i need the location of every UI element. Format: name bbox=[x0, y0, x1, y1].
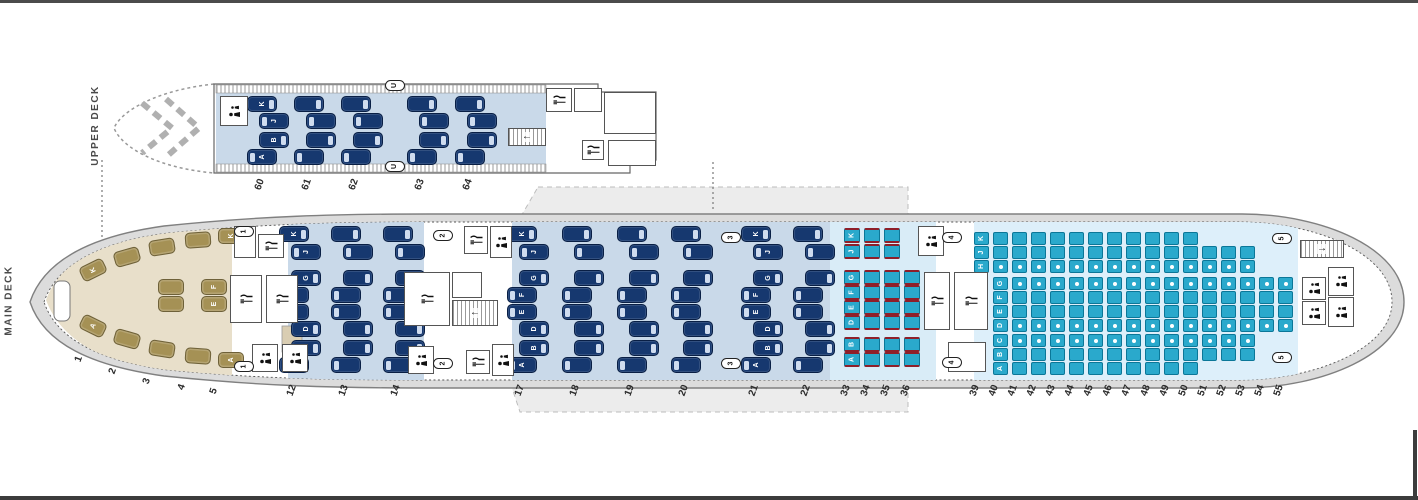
seat-49D[interactable] bbox=[1164, 319, 1179, 332]
seat-55D[interactable] bbox=[1278, 319, 1293, 332]
seat-19E[interactable] bbox=[617, 304, 647, 320]
seat-44F[interactable] bbox=[1069, 291, 1084, 304]
seat-13J[interactable] bbox=[343, 244, 373, 260]
seat-34J[interactable] bbox=[864, 244, 880, 259]
person-icon bbox=[1309, 282, 1320, 295]
seat-49F[interactable] bbox=[1164, 291, 1179, 304]
seat-40F[interactable]: F bbox=[993, 291, 1008, 304]
aisle-seat-dot bbox=[1151, 265, 1155, 269]
seat-51B[interactable] bbox=[1202, 348, 1217, 361]
seat-18K[interactable] bbox=[562, 226, 592, 242]
seat-50G[interactable] bbox=[1183, 277, 1198, 290]
seat-34E[interactable] bbox=[864, 300, 880, 315]
seat-55F[interactable] bbox=[1278, 291, 1293, 304]
seat-54E[interactable] bbox=[1259, 305, 1274, 318]
galley-box bbox=[258, 234, 284, 258]
seat-22B[interactable] bbox=[805, 340, 835, 356]
seat-47D[interactable] bbox=[1126, 319, 1141, 332]
seat-47A[interactable] bbox=[1126, 362, 1141, 375]
seat-43C[interactable] bbox=[1050, 334, 1065, 347]
seat-43K[interactable] bbox=[1050, 232, 1065, 245]
seat-53D[interactable] bbox=[1240, 319, 1255, 332]
seat-45C[interactable] bbox=[1088, 334, 1103, 347]
seat-47B[interactable] bbox=[1126, 348, 1141, 361]
headrest-pillow bbox=[674, 308, 679, 317]
seat-19B[interactable] bbox=[629, 340, 659, 356]
seat-22G[interactable] bbox=[805, 270, 835, 286]
seat-48D[interactable] bbox=[1145, 319, 1160, 332]
seat-13E[interactable] bbox=[331, 304, 361, 320]
headrest-pillow bbox=[651, 274, 656, 283]
seat-48E[interactable] bbox=[1145, 305, 1160, 318]
galley-box bbox=[574, 88, 602, 112]
seat-36E[interactable] bbox=[904, 300, 920, 315]
seat-48H[interactable] bbox=[1145, 260, 1160, 273]
seat-41E[interactable] bbox=[1012, 305, 1027, 318]
seat-61K[interactable] bbox=[294, 96, 324, 112]
seat-62B[interactable] bbox=[353, 132, 383, 148]
aisle-seat-dot bbox=[1189, 324, 1193, 328]
seat-46A[interactable] bbox=[1107, 362, 1122, 375]
aisle-seat-dot bbox=[1075, 339, 1079, 343]
headrest-pillow bbox=[417, 325, 422, 334]
seat-49A[interactable] bbox=[1164, 362, 1179, 375]
seat-55G[interactable] bbox=[1278, 277, 1293, 290]
headrest-pillow bbox=[334, 308, 339, 317]
seat-55E[interactable] bbox=[1278, 305, 1293, 318]
seat-22K[interactable] bbox=[793, 226, 823, 242]
seat-42J[interactable] bbox=[1031, 246, 1046, 259]
seat-45B[interactable] bbox=[1088, 348, 1103, 361]
seat-42D[interactable] bbox=[1031, 319, 1046, 332]
seat-18D[interactable] bbox=[574, 321, 604, 337]
seat-22A[interactable] bbox=[793, 357, 823, 373]
seat-52H[interactable] bbox=[1221, 260, 1236, 273]
seat-41A[interactable] bbox=[1012, 362, 1027, 375]
seat-13G[interactable] bbox=[343, 270, 373, 286]
seat-50D[interactable] bbox=[1183, 319, 1198, 332]
seat-42E[interactable] bbox=[1031, 305, 1046, 318]
seat-64B[interactable] bbox=[467, 132, 497, 148]
seat-34K[interactable] bbox=[864, 228, 880, 243]
aisle-seat-dot bbox=[1227, 282, 1231, 286]
seat-63A[interactable] bbox=[407, 149, 437, 165]
seat-19F[interactable] bbox=[617, 287, 647, 303]
seat-45D[interactable] bbox=[1088, 319, 1103, 332]
seat-19K[interactable] bbox=[617, 226, 647, 242]
seat-48J[interactable] bbox=[1145, 246, 1160, 259]
seat-64J[interactable] bbox=[467, 113, 497, 129]
seat-52J[interactable] bbox=[1221, 246, 1236, 259]
seat-33E[interactable]: E bbox=[844, 300, 860, 315]
seat-36B[interactable] bbox=[904, 337, 920, 352]
seat-47J[interactable] bbox=[1126, 246, 1141, 259]
seat-43D[interactable] bbox=[1050, 319, 1065, 332]
seat-60A[interactable]: A bbox=[247, 149, 277, 165]
seat-63K[interactable] bbox=[407, 96, 437, 112]
seat-13A[interactable] bbox=[331, 357, 361, 373]
seat-46B[interactable] bbox=[1107, 348, 1122, 361]
seat-53J[interactable] bbox=[1240, 246, 1255, 259]
seat-41K[interactable] bbox=[1012, 232, 1027, 245]
seat-51F[interactable] bbox=[1202, 291, 1217, 304]
seat-41D[interactable] bbox=[1012, 319, 1027, 332]
lavatory-box bbox=[1328, 267, 1354, 296]
seat-64A[interactable] bbox=[455, 149, 485, 165]
lavatory-box bbox=[492, 344, 514, 376]
seat-50K[interactable] bbox=[1183, 232, 1198, 245]
seat-46F[interactable] bbox=[1107, 291, 1122, 304]
upper-deck-nose-dashed bbox=[114, 84, 214, 173]
seat-50J[interactable] bbox=[1183, 246, 1198, 259]
headrest-pillow bbox=[470, 117, 475, 126]
seat-47G[interactable] bbox=[1126, 277, 1141, 290]
seat-51C[interactable] bbox=[1202, 334, 1217, 347]
seat-46C[interactable] bbox=[1107, 334, 1122, 347]
seat-62K[interactable] bbox=[341, 96, 371, 112]
seat-44A[interactable] bbox=[1069, 362, 1084, 375]
seat-53G[interactable] bbox=[1240, 277, 1255, 290]
seat-19D[interactable] bbox=[629, 321, 659, 337]
seat-46J[interactable] bbox=[1107, 246, 1122, 259]
seat-49G[interactable] bbox=[1164, 277, 1179, 290]
seat-20K[interactable] bbox=[671, 226, 701, 242]
seat-33G[interactable]: G bbox=[844, 270, 860, 285]
seat-44C[interactable] bbox=[1069, 334, 1084, 347]
seat-41J[interactable] bbox=[1012, 246, 1027, 259]
seat-34F[interactable] bbox=[864, 285, 880, 300]
seat-52B[interactable] bbox=[1221, 348, 1236, 361]
aisle-seat-dot bbox=[1056, 339, 1060, 343]
seat-49E[interactable] bbox=[1164, 305, 1179, 318]
galley-box bbox=[924, 272, 950, 330]
seat-43E[interactable] bbox=[1050, 305, 1065, 318]
seat-45H[interactable] bbox=[1088, 260, 1103, 273]
seat-53F[interactable] bbox=[1240, 291, 1255, 304]
headrest-pillow bbox=[297, 153, 302, 162]
seat-33K[interactable]: K bbox=[844, 228, 860, 243]
seat-35J[interactable] bbox=[884, 244, 900, 259]
seat-48K[interactable] bbox=[1145, 232, 1160, 245]
seat-62A[interactable] bbox=[341, 149, 371, 165]
aisle-seat-dot bbox=[1208, 339, 1212, 343]
seat-19G[interactable] bbox=[629, 270, 659, 286]
seat-20A[interactable] bbox=[671, 357, 701, 373]
seat-40A[interactable]: A bbox=[993, 362, 1008, 375]
seat-43A[interactable] bbox=[1050, 362, 1065, 375]
seat-64K[interactable] bbox=[455, 96, 485, 112]
seat-51J[interactable] bbox=[1202, 246, 1217, 259]
headrest-pillow bbox=[386, 291, 391, 300]
seat-letter: J bbox=[527, 238, 541, 266]
seat-36G[interactable] bbox=[904, 270, 920, 285]
seat-20J[interactable] bbox=[683, 244, 713, 260]
fork-knife-icon bbox=[276, 295, 288, 304]
seat-13B[interactable] bbox=[343, 340, 373, 356]
seat-18E[interactable] bbox=[562, 304, 592, 320]
seat-18F[interactable] bbox=[562, 287, 592, 303]
aisle-seat-dot bbox=[1037, 282, 1041, 286]
seat-13F[interactable] bbox=[331, 287, 361, 303]
seat-22J[interactable] bbox=[805, 244, 835, 260]
seat-52D[interactable] bbox=[1221, 319, 1236, 332]
seat-61J[interactable] bbox=[306, 113, 336, 129]
seat-42G[interactable] bbox=[1031, 277, 1046, 290]
seat-35B[interactable] bbox=[884, 337, 900, 352]
seat-46K[interactable] bbox=[1107, 232, 1122, 245]
lavatory-box bbox=[220, 96, 248, 126]
seat-45G[interactable] bbox=[1088, 277, 1103, 290]
seat-61A[interactable] bbox=[294, 149, 324, 165]
seat-43G[interactable] bbox=[1050, 277, 1065, 290]
seat-19A[interactable] bbox=[617, 357, 647, 373]
seat-50B[interactable] bbox=[1183, 348, 1198, 361]
seat-50C[interactable] bbox=[1183, 334, 1198, 347]
seat-44D[interactable] bbox=[1069, 319, 1084, 332]
seat-40K[interactable] bbox=[993, 232, 1008, 245]
seat-40C[interactable]: C bbox=[993, 334, 1008, 347]
aisle-seat-dot bbox=[1208, 265, 1212, 269]
person-icon bbox=[1309, 307, 1320, 320]
seat-39J[interactable]: J bbox=[974, 246, 989, 259]
seat-35F[interactable] bbox=[884, 285, 900, 300]
seat-14K[interactable] bbox=[383, 226, 413, 242]
seat-35K[interactable] bbox=[884, 228, 900, 243]
seat-18J[interactable] bbox=[574, 244, 604, 260]
seat-48C[interactable] bbox=[1145, 334, 1160, 347]
seat-52C[interactable] bbox=[1221, 334, 1236, 347]
seat-34B[interactable] bbox=[864, 337, 880, 352]
seat-63B[interactable] bbox=[419, 132, 449, 148]
seat-44B[interactable] bbox=[1069, 348, 1084, 361]
seat-4E[interactable] bbox=[158, 296, 184, 312]
seat-letter: A bbox=[847, 353, 858, 367]
seat-33J[interactable]: J bbox=[844, 244, 860, 259]
seat-12J[interactable]: J bbox=[291, 244, 321, 260]
seat-18B[interactable] bbox=[574, 340, 604, 356]
nose-door-panel bbox=[54, 281, 70, 321]
seat-41F[interactable] bbox=[1012, 291, 1027, 304]
exit-door-1: 1 bbox=[234, 361, 254, 372]
seat-39K[interactable]: K bbox=[974, 232, 989, 245]
aisle-seat-dot bbox=[1037, 339, 1041, 343]
seat-36F[interactable] bbox=[904, 285, 920, 300]
seat-45K[interactable] bbox=[1088, 232, 1103, 245]
aisle-seat-dot bbox=[1113, 324, 1117, 328]
fork-knife-icon bbox=[931, 297, 943, 306]
seat-47E[interactable] bbox=[1126, 305, 1141, 318]
seat-21J[interactable]: J bbox=[753, 244, 783, 260]
fork-knife-icon bbox=[553, 96, 565, 105]
seat-46E[interactable] bbox=[1107, 305, 1122, 318]
seat-49C[interactable] bbox=[1164, 334, 1179, 347]
seat-20D[interactable] bbox=[683, 321, 713, 337]
seat-40H[interactable] bbox=[993, 260, 1008, 273]
seat-22E[interactable] bbox=[793, 304, 823, 320]
seat-44H[interactable] bbox=[1069, 260, 1084, 273]
aisle-seat-dot bbox=[1094, 265, 1098, 269]
seat-61B[interactable] bbox=[306, 132, 336, 148]
seat-52F[interactable] bbox=[1221, 291, 1236, 304]
seat-47H[interactable] bbox=[1126, 260, 1141, 273]
seat-54F[interactable] bbox=[1259, 291, 1274, 304]
seat-62J[interactable] bbox=[353, 113, 383, 129]
seat-51H[interactable] bbox=[1202, 260, 1217, 273]
seat-54D[interactable] bbox=[1259, 319, 1274, 332]
seat-49K[interactable] bbox=[1164, 232, 1179, 245]
seat-42H[interactable] bbox=[1031, 260, 1046, 273]
headrest-pillow bbox=[693, 230, 698, 239]
seat-41C[interactable] bbox=[1012, 334, 1027, 347]
seat-letter: K bbox=[976, 232, 987, 245]
seat-20E[interactable] bbox=[671, 304, 701, 320]
seat-51G[interactable] bbox=[1202, 277, 1217, 290]
seat-42B[interactable] bbox=[1031, 348, 1046, 361]
seat-42C[interactable] bbox=[1031, 334, 1046, 347]
headrest-pillow bbox=[328, 136, 333, 145]
seat-19J[interactable] bbox=[629, 244, 659, 260]
seat-46H[interactable] bbox=[1107, 260, 1122, 273]
seat-53B[interactable] bbox=[1240, 348, 1255, 361]
lavatory-box bbox=[252, 344, 278, 372]
seat-44G[interactable] bbox=[1069, 277, 1084, 290]
seat-48G[interactable] bbox=[1145, 277, 1160, 290]
seat-48B[interactable] bbox=[1145, 348, 1160, 361]
seat-35G[interactable] bbox=[884, 270, 900, 285]
seat-42A[interactable] bbox=[1031, 362, 1046, 375]
seat-letter: G bbox=[995, 277, 1006, 290]
seat-44K[interactable] bbox=[1069, 232, 1084, 245]
cockpit-chevron-icon bbox=[142, 103, 172, 153]
seat-44E[interactable] bbox=[1069, 305, 1084, 318]
seat-20F[interactable] bbox=[671, 287, 701, 303]
seat-46D[interactable] bbox=[1107, 319, 1122, 332]
seat-42F[interactable] bbox=[1031, 291, 1046, 304]
seat-33A[interactable]: A bbox=[844, 352, 860, 367]
seat-36D[interactable] bbox=[904, 315, 920, 330]
headrest-pillow bbox=[363, 100, 368, 109]
seat-34G[interactable] bbox=[864, 270, 880, 285]
headrest-pillow bbox=[815, 230, 820, 239]
seat-40B[interactable]: B bbox=[993, 348, 1008, 361]
seat-50A[interactable] bbox=[1183, 362, 1198, 375]
seat-46G[interactable] bbox=[1107, 277, 1122, 290]
seat-40D[interactable]: D bbox=[993, 319, 1008, 332]
headrest-pillow bbox=[596, 344, 601, 353]
aisle-seat-dot bbox=[1132, 282, 1136, 286]
seat-43B[interactable] bbox=[1050, 348, 1065, 361]
seat-53H[interactable] bbox=[1240, 260, 1255, 273]
seat-44J[interactable] bbox=[1069, 246, 1084, 259]
seat-20B[interactable] bbox=[683, 340, 713, 356]
aisle-seat-dot bbox=[1246, 282, 1250, 286]
seat-36A[interactable] bbox=[904, 352, 920, 367]
seat-4A[interactable] bbox=[184, 347, 211, 365]
seat-45J[interactable] bbox=[1088, 246, 1103, 259]
seat-42K[interactable] bbox=[1031, 232, 1046, 245]
seat-33D[interactable]: D bbox=[844, 315, 860, 330]
seat-47F[interactable] bbox=[1126, 291, 1141, 304]
seat-49J[interactable] bbox=[1164, 246, 1179, 259]
seat-47K[interactable] bbox=[1126, 232, 1141, 245]
seat-52G[interactable] bbox=[1221, 277, 1236, 290]
headrest-pillow bbox=[620, 308, 625, 317]
seat-22D[interactable] bbox=[805, 321, 835, 337]
seat-18A[interactable] bbox=[562, 357, 592, 373]
seat-43F[interactable] bbox=[1050, 291, 1065, 304]
seat-13D[interactable] bbox=[343, 321, 373, 337]
seat-41G[interactable] bbox=[1012, 277, 1027, 290]
seat-letter: G bbox=[847, 271, 858, 285]
seat-35E[interactable] bbox=[884, 300, 900, 315]
seat-45E[interactable] bbox=[1088, 305, 1103, 318]
seat-49B[interactable] bbox=[1164, 348, 1179, 361]
seat-4F[interactable] bbox=[158, 279, 184, 295]
seat-63J[interactable] bbox=[419, 113, 449, 129]
seat-22F[interactable] bbox=[793, 287, 823, 303]
seat-4K[interactable] bbox=[184, 231, 211, 249]
seat-letter: E bbox=[207, 292, 221, 316]
seat-35D[interactable] bbox=[884, 315, 900, 330]
seat-5E[interactable]: E bbox=[201, 296, 227, 312]
headrest-pillow bbox=[639, 230, 644, 239]
seat-34D[interactable] bbox=[864, 315, 880, 330]
seat-13K[interactable] bbox=[331, 226, 361, 242]
seat-40E[interactable]: E bbox=[993, 305, 1008, 318]
aisle-seat-dot bbox=[1284, 282, 1288, 286]
headrest-pillow bbox=[632, 248, 637, 257]
seat-43J[interactable] bbox=[1050, 246, 1065, 259]
seat-54G[interactable] bbox=[1259, 277, 1274, 290]
seat-53E[interactable] bbox=[1240, 305, 1255, 318]
exit-door-U: U bbox=[385, 161, 405, 172]
seat-35A[interactable] bbox=[884, 352, 900, 367]
seat-50E[interactable] bbox=[1183, 305, 1198, 318]
seat-52E[interactable] bbox=[1221, 305, 1236, 318]
seat-50F[interactable] bbox=[1183, 291, 1198, 304]
seat-34A[interactable] bbox=[864, 352, 880, 367]
galley-box bbox=[466, 350, 490, 374]
seat-48F[interactable] bbox=[1145, 291, 1160, 304]
seat-33F[interactable]: F bbox=[844, 285, 860, 300]
seat-21A[interactable]: A bbox=[741, 357, 771, 373]
seat-41H[interactable] bbox=[1012, 260, 1027, 273]
seat-17J[interactable]: J bbox=[519, 244, 549, 260]
aisle-seat-dot bbox=[1075, 282, 1079, 286]
seat-45F[interactable] bbox=[1088, 291, 1103, 304]
seat-50H[interactable] bbox=[1183, 260, 1198, 273]
seat-48A[interactable] bbox=[1145, 362, 1160, 375]
aisle-seat-dot bbox=[1075, 324, 1079, 328]
seat-43H[interactable] bbox=[1050, 260, 1065, 273]
seat-40J[interactable] bbox=[993, 246, 1008, 259]
seat-18G[interactable] bbox=[574, 270, 604, 286]
seat-53C[interactable] bbox=[1240, 334, 1255, 347]
seat-40G[interactable]: G bbox=[993, 277, 1008, 290]
seat-14J[interactable] bbox=[395, 244, 425, 260]
seat-51D[interactable] bbox=[1202, 319, 1217, 332]
exit-door-1: 1 bbox=[234, 226, 254, 237]
seat-41B[interactable] bbox=[1012, 348, 1027, 361]
seat-51E[interactable] bbox=[1202, 305, 1217, 318]
seat-20G[interactable] bbox=[683, 270, 713, 286]
seat-49H[interactable] bbox=[1164, 260, 1179, 273]
seat-33B[interactable]: B bbox=[844, 337, 860, 352]
headrest-pillow bbox=[386, 308, 391, 317]
seat-45A[interactable] bbox=[1088, 362, 1103, 375]
seat-47C[interactable] bbox=[1126, 334, 1141, 347]
aisle-seat-dot bbox=[1037, 265, 1041, 269]
